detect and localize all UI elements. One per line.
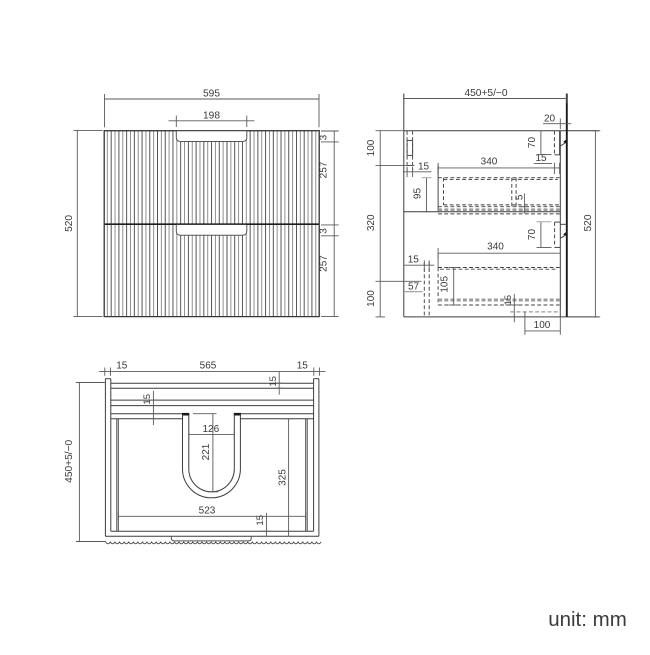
svg-text:198: 198 bbox=[203, 110, 220, 121]
svg-text:15: 15 bbox=[142, 394, 153, 405]
svg-text:100: 100 bbox=[366, 290, 377, 307]
svg-text:257: 257 bbox=[318, 255, 329, 272]
svg-text:3: 3 bbox=[318, 134, 329, 140]
svg-text:450+5/−0: 450+5/−0 bbox=[464, 88, 507, 99]
svg-text:105: 105 bbox=[440, 276, 451, 293]
svg-text:3: 3 bbox=[318, 228, 329, 234]
svg-text:15: 15 bbox=[418, 162, 430, 173]
svg-text:340: 340 bbox=[487, 242, 504, 253]
svg-text:340: 340 bbox=[481, 156, 498, 167]
svg-text:15: 15 bbox=[255, 515, 266, 526]
svg-text:unit: mm: unit: mm bbox=[548, 608, 627, 631]
svg-text:320: 320 bbox=[366, 214, 377, 231]
svg-text:15: 15 bbox=[503, 295, 514, 306]
svg-text:100: 100 bbox=[534, 320, 551, 331]
svg-text:70: 70 bbox=[527, 229, 538, 241]
svg-text:325: 325 bbox=[278, 469, 289, 486]
svg-text:520: 520 bbox=[64, 215, 75, 232]
svg-text:126: 126 bbox=[202, 424, 219, 435]
svg-text:95: 95 bbox=[412, 188, 423, 200]
svg-text:15: 15 bbox=[297, 361, 309, 372]
svg-text:221: 221 bbox=[201, 443, 212, 460]
svg-text:520: 520 bbox=[583, 214, 594, 231]
svg-text:100: 100 bbox=[366, 139, 377, 156]
svg-text:5: 5 bbox=[515, 194, 526, 200]
svg-text:20: 20 bbox=[544, 114, 556, 125]
svg-text:523: 523 bbox=[199, 506, 216, 517]
svg-text:565: 565 bbox=[200, 361, 217, 372]
svg-text:15: 15 bbox=[408, 255, 420, 266]
svg-text:15: 15 bbox=[268, 376, 279, 387]
svg-text:57: 57 bbox=[408, 282, 420, 293]
svg-text:595: 595 bbox=[203, 89, 220, 100]
svg-text:450+5/−0: 450+5/−0 bbox=[64, 439, 75, 482]
svg-text:257: 257 bbox=[318, 161, 329, 178]
svg-text:15: 15 bbox=[116, 361, 128, 372]
svg-text:70: 70 bbox=[527, 137, 538, 149]
